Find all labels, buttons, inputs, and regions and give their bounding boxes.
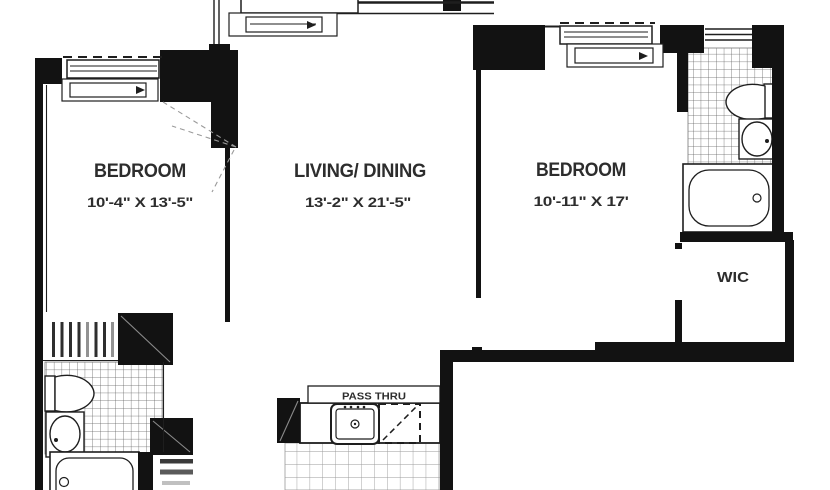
kitchen-sink-icon [331,404,379,444]
wall-wic-stub [675,243,682,249]
wall-outer-right-upper [772,25,784,240]
bedroom-left-dimensions: 10'-4" X 13'-5" [87,194,193,210]
floor-plan: BEDROOM 10'-4" X 13'-5" LIVING/ DINING 1… [0,0,830,490]
wall-wic-west [675,300,682,343]
bedroom-right-label: BEDROOM [536,160,626,181]
wall-south-right [595,342,794,362]
wall-bedroom-left-east [225,148,230,322]
bedroom-left-label: BEDROOM [94,161,186,182]
window-unit-bedroom-left [62,57,162,101]
wall-bedroom-right-west [476,70,481,298]
wall-column-bedroom-left [160,50,238,102]
wall-bath-left-divider [138,452,153,490]
wic-label: WIC [717,269,749,286]
wall-outer-right-lower [785,240,794,352]
bathtub-icon [683,164,775,232]
wall-outer-left [35,58,43,490]
window-unit-bedroom-right [560,23,663,67]
toilet-icon [726,84,775,120]
wall-header-bedroom-right [473,25,545,70]
wall-mullion-block [209,44,230,57]
living-dining-label: LIVING/ DINING [294,161,426,182]
window-unit-living [229,0,358,36]
floor-plan-canvas: BEDROOM 10'-4" X 13'-5" LIVING/ DINING 1… [0,0,830,490]
closet-rod-icon [52,322,114,357]
sink-icon [739,119,776,159]
sink-icon [46,412,84,457]
linen-shelves-icon [160,459,193,485]
wall-south-left [440,350,597,362]
wall-below-tub [680,232,793,242]
bedroom-right-dimensions: 10'-11" X 17' [534,193,629,209]
wall-bath-right-west [677,48,688,112]
pass-thru-label: PASS THRU [342,391,406,403]
wall-kitchen-east [440,350,453,490]
wall-column-bedroom-left-ext [211,100,238,148]
toilet-icon [45,375,94,411]
kitchen-tile-floor [285,443,440,490]
wall-corner-top-left [35,58,62,84]
living-dining-dimensions: 13'-2" X 21'-5" [305,194,411,210]
bathtub-icon [50,452,139,490]
